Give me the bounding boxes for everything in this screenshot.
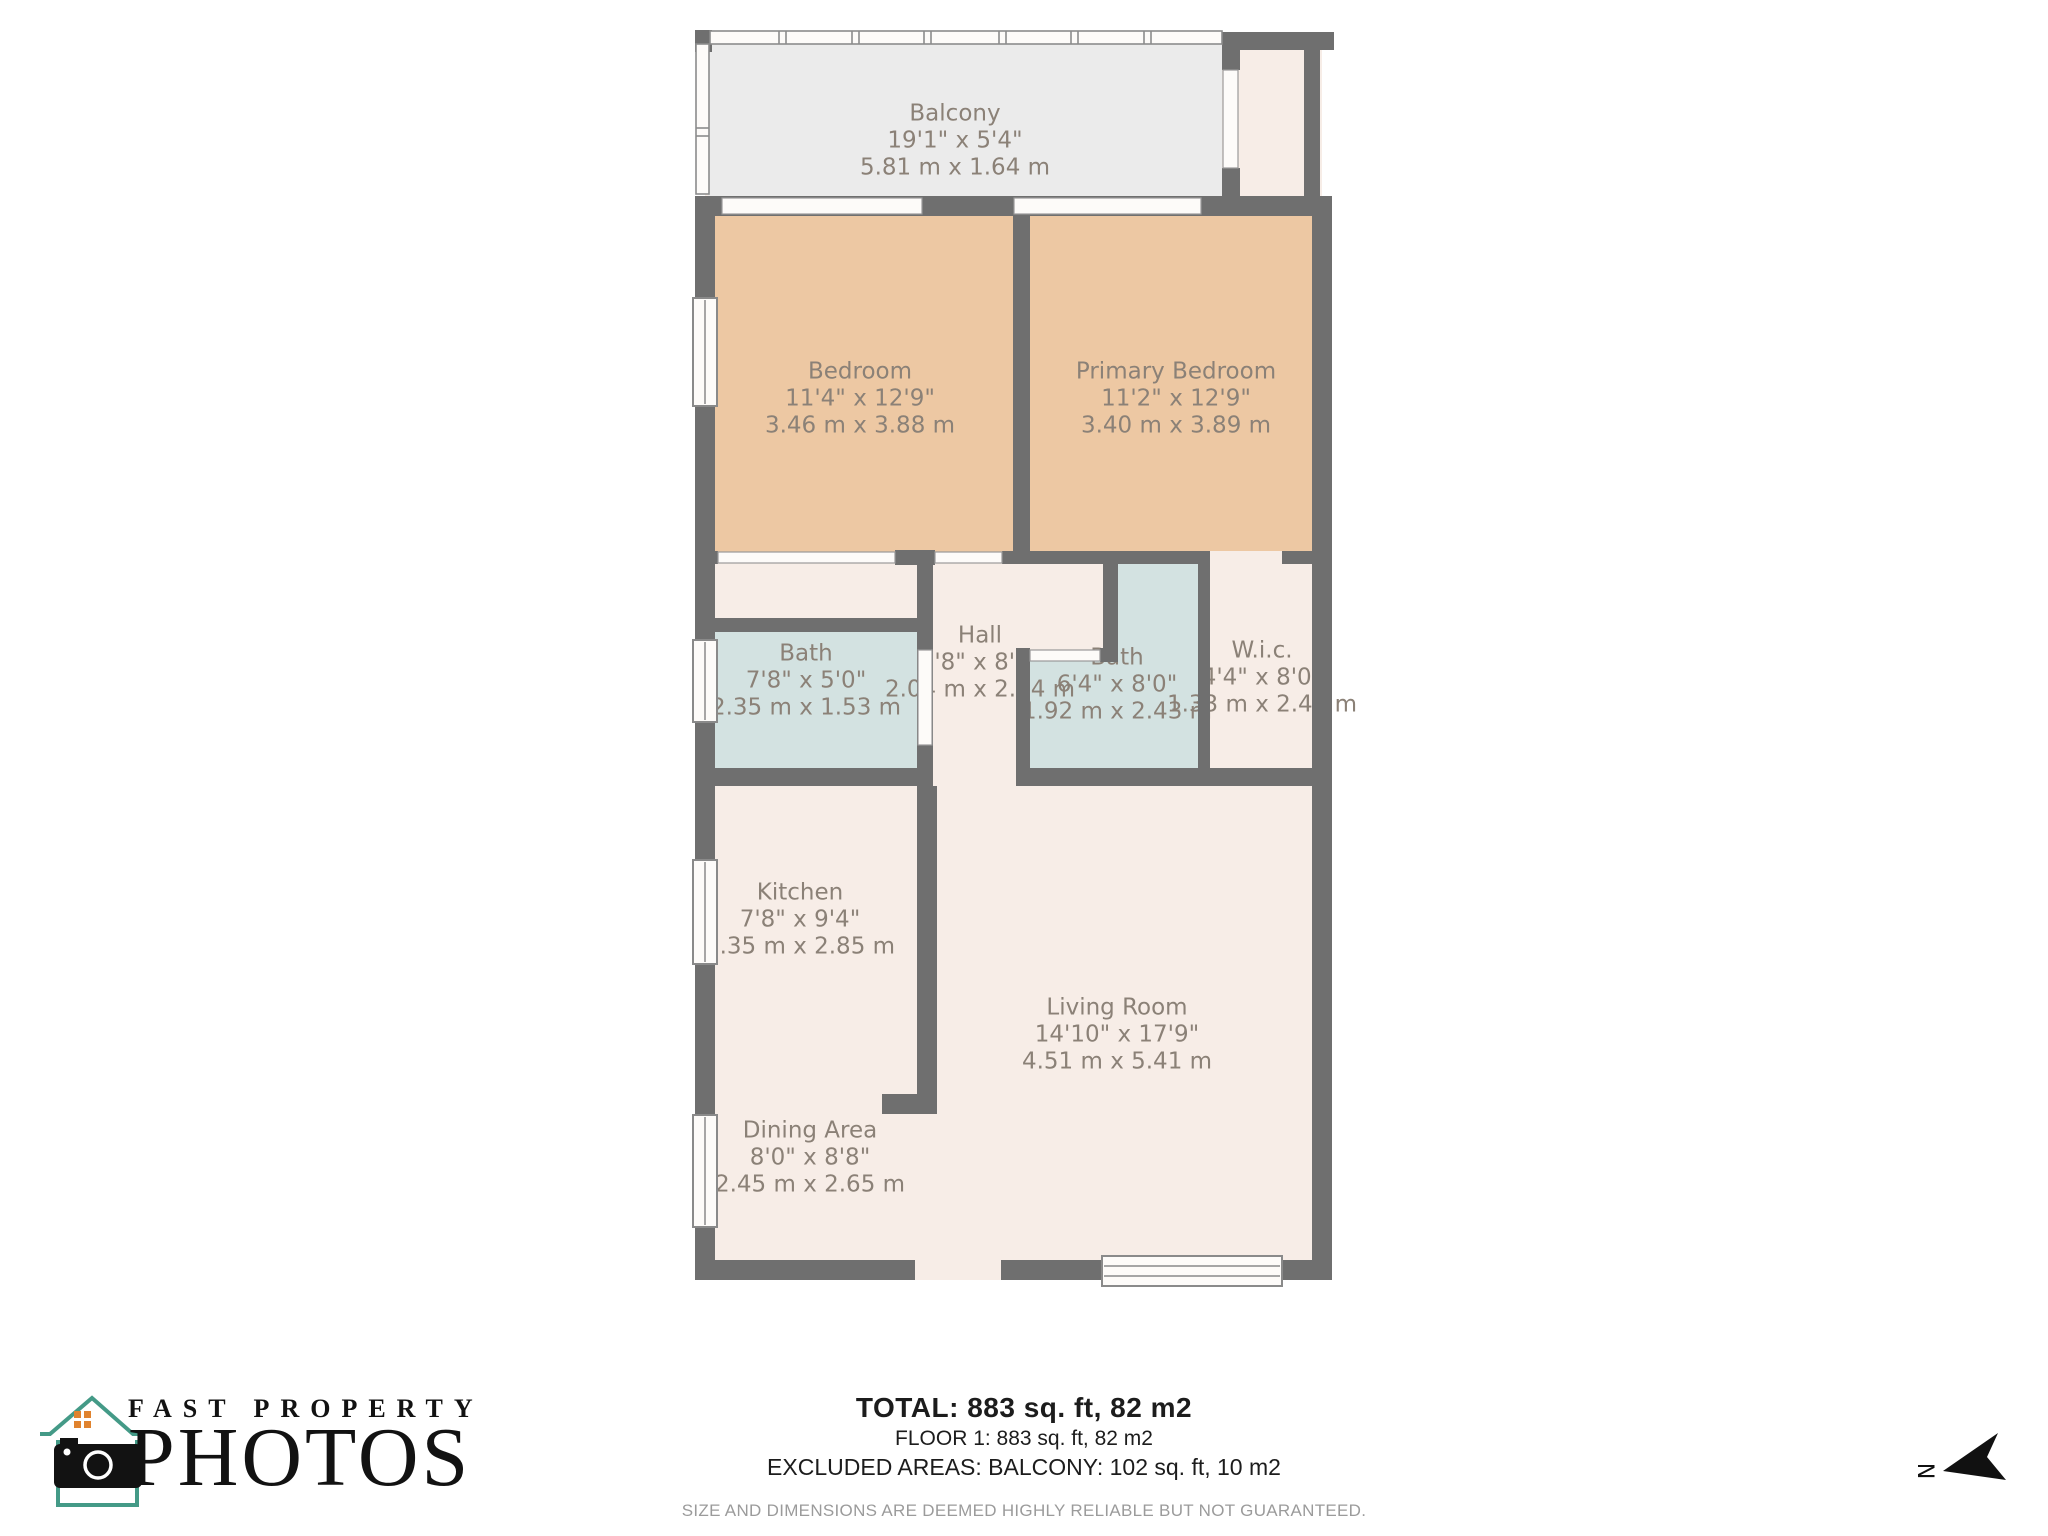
wall <box>1282 551 1332 564</box>
wall <box>1222 32 1334 50</box>
floorplan-fills <box>0 0 2048 1536</box>
entry-opening <box>915 1260 1001 1280</box>
floor-area-text: FLOOR 1: 883 sq. ft, 82 m2 <box>0 1427 2048 1451</box>
balcony-side-door <box>1223 70 1238 168</box>
wall <box>695 768 933 786</box>
wall <box>1222 168 1240 196</box>
wall <box>695 551 718 564</box>
room-label-living-room: Living Room 14'10" x 17'9" 4.51 m x 5.41… <box>1022 995 1212 1076</box>
dining-window <box>693 1115 717 1227</box>
room-label-bedroom: Bedroom 11'4" x 12'9" 3.46 m x 3.88 m <box>765 359 955 440</box>
wall <box>695 1260 1332 1280</box>
wall <box>1002 551 1030 564</box>
wall <box>1222 43 1240 70</box>
wall <box>1304 32 1320 216</box>
floorplan-page: Balcony 19'1" x 5'4" 5.81 m x 1.64 m Bed… <box>0 0 2048 1536</box>
floorplan-walls: N <box>0 0 2048 1536</box>
wall <box>695 30 712 52</box>
wall <box>1013 216 1030 558</box>
room-label-bath-1: Bath 7'8" x 5'0" 2.35 m x 1.53 m <box>711 641 901 722</box>
living-room-window <box>1102 1256 1282 1286</box>
wall <box>1030 551 1208 564</box>
wall <box>695 196 715 1280</box>
wall <box>695 618 917 632</box>
wall <box>695 196 1332 216</box>
room-label-wic: W.i.c. 4'4" x 8'0" 1.33 m x 2.43 m <box>1167 638 1357 719</box>
bedroom-hall-opening <box>935 552 1002 563</box>
room-label-dining-area: Dining Area 8'0" x 8'8" 2.45 m x 2.65 m <box>715 1118 905 1199</box>
wall <box>882 1094 937 1114</box>
wall <box>917 786 937 1114</box>
room-label-kitchen: Kitchen 7'8" x 9'4" 2.35 m x 2.85 m <box>705 880 895 961</box>
disclaimer-text: SIZE AND DIMENSIONS ARE DEEMED HIGHLY RE… <box>0 1501 2048 1521</box>
area-summary: TOTAL: 883 sq. ft, 82 m2 FLOOR 1: 883 sq… <box>0 1392 2048 1521</box>
total-area-text: TOTAL: 883 sq. ft, 82 m2 <box>0 1392 2048 1424</box>
balcony-sliding-door <box>1014 198 1201 214</box>
wall <box>895 550 935 565</box>
wall <box>1016 768 1332 786</box>
room-label-primary-bedroom: Primary Bedroom 11'2" x 12'9" 3.40 m x 3… <box>1076 359 1276 440</box>
room-label-balcony: Balcony 19'1" x 5'4" 5.81 m x 1.64 m <box>860 101 1050 182</box>
bedroom-window <box>693 298 717 406</box>
balcony-sliding-door <box>722 198 922 214</box>
bedroom-opening <box>718 552 895 563</box>
excluded-areas-text: EXCLUDED AREAS: BALCONY: 102 sq. ft, 10 … <box>0 1454 2048 1481</box>
wall <box>1312 196 1332 1280</box>
